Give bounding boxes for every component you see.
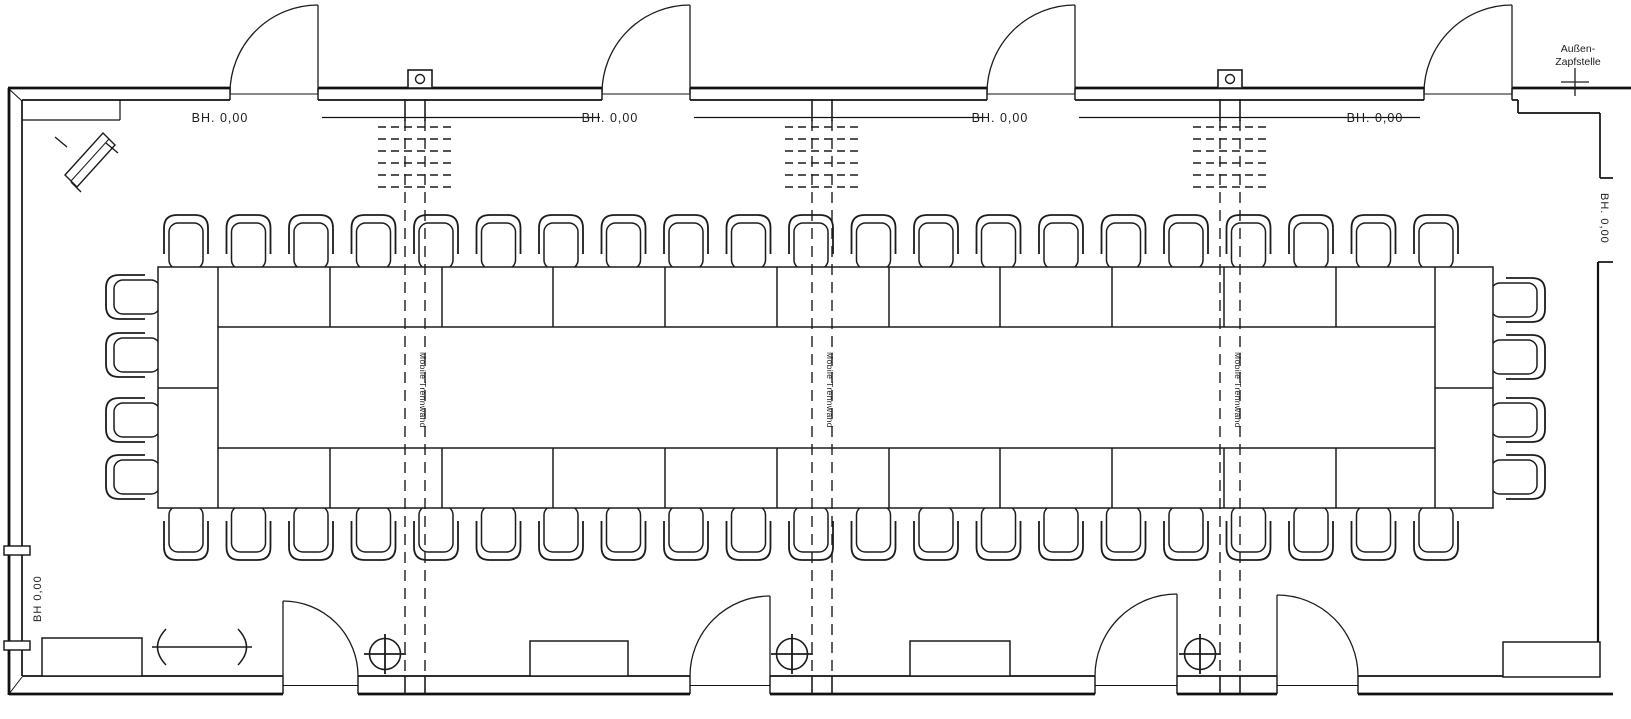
chair (602, 215, 646, 269)
bh-label-left: BH 0,00 (32, 575, 44, 622)
chair (539, 215, 583, 269)
chair (1039, 215, 1083, 269)
chair (352, 215, 396, 269)
chair (1102, 506, 1146, 560)
sideboard-left (42, 638, 142, 676)
chair (106, 275, 160, 319)
mobile-trennwand-label-2: Mobile Trennwand (825, 352, 835, 428)
chair (977, 215, 1021, 269)
sideboard-mid-1 (530, 641, 628, 676)
door-bottom-3 (1095, 594, 1177, 676)
chair (852, 506, 896, 560)
floor-socket-icon (364, 634, 406, 674)
chair (602, 506, 646, 560)
bottom-door-jambs (283, 676, 1358, 694)
chair (1289, 215, 1333, 269)
door-top-3 (987, 5, 1075, 93)
chair (164, 506, 208, 560)
door-top-1 (230, 5, 318, 93)
aussen-zapfstelle-label-line2: Zapfstelle (1555, 56, 1601, 68)
chair (1414, 506, 1458, 560)
chair (664, 506, 708, 560)
chair (1414, 215, 1458, 269)
chair (1164, 215, 1208, 269)
chair (164, 215, 208, 269)
chair (539, 506, 583, 560)
door-bottom-4 (1277, 595, 1358, 676)
mobile-trennwand-label-1: Mobile Trennwand (418, 352, 428, 428)
sideboard-mid-2 (910, 641, 1010, 676)
corner-mitre-topleft (9, 89, 22, 101)
chair (977, 506, 1021, 560)
bh-label-4: BH. 0,00 (1347, 111, 1404, 125)
chair (1227, 506, 1271, 560)
chair (1102, 215, 1146, 269)
door-top-2 (602, 5, 690, 93)
aussen-zapfstelle-label-line1: Außen- (1561, 43, 1596, 55)
chair (477, 215, 521, 269)
door-bottom-1 (283, 601, 358, 676)
chair (664, 215, 708, 269)
mobile-trennwand-label-3: Mobile Trennwand (1233, 352, 1243, 428)
chair (227, 506, 271, 560)
chair (789, 215, 833, 269)
double-arrow-symbol (152, 629, 252, 665)
chair (1352, 215, 1396, 269)
floor-plan-sheet: BH. 0,00 BH. 0,00 BH. 0,00 BH. 0,00 Auße… (0, 0, 1631, 719)
sideboard-right (1503, 642, 1600, 677)
corner-table (55, 133, 118, 192)
bh-label-right: BH. 0,00 (1598, 193, 1610, 244)
chair (1491, 398, 1545, 442)
chair (414, 215, 458, 269)
chair (106, 333, 160, 377)
wall-fixture-1 (408, 70, 432, 88)
chair (1039, 506, 1083, 560)
corner-mitre-bottomleft (9, 677, 22, 694)
chair (477, 506, 521, 560)
chair (914, 215, 958, 269)
floor-socket-icon (771, 634, 813, 674)
sideboards (42, 638, 1600, 677)
chair (1352, 506, 1396, 560)
chair (727, 506, 771, 560)
chair (227, 215, 271, 269)
door-top-4 (1424, 5, 1512, 93)
left-wall-joint-lower (4, 641, 30, 650)
chair (1227, 215, 1271, 269)
chair (352, 506, 396, 560)
bh-label-3: BH. 0,00 (972, 111, 1029, 125)
left-wall-joint-upper (4, 546, 30, 555)
outdoor-tap-cross-icon (1561, 68, 1589, 96)
chair (106, 455, 160, 499)
bh-label-2: BH. 0,00 (582, 111, 639, 125)
chair (1164, 506, 1208, 560)
chair (789, 506, 833, 560)
chair (106, 398, 160, 442)
partition-wall-fixtures (408, 70, 1242, 88)
floor-socket-icon (1179, 634, 1221, 674)
chair (414, 506, 458, 560)
chair (1491, 455, 1545, 499)
chair (1491, 335, 1545, 379)
chair (289, 506, 333, 560)
chair (289, 215, 333, 269)
chair (727, 215, 771, 269)
door-bottom-2 (690, 596, 770, 676)
chair (1491, 278, 1545, 322)
chair (1289, 506, 1333, 560)
chair (852, 215, 896, 269)
top-door-jambs (230, 88, 1512, 100)
chair (914, 506, 958, 560)
wall-fixture-2 (1218, 70, 1242, 88)
floor-plan-drawing: BH. 0,00 BH. 0,00 BH. 0,00 BH. 0,00 Auße… (0, 0, 1631, 719)
bh-label-1: BH. 0,00 (192, 111, 249, 125)
